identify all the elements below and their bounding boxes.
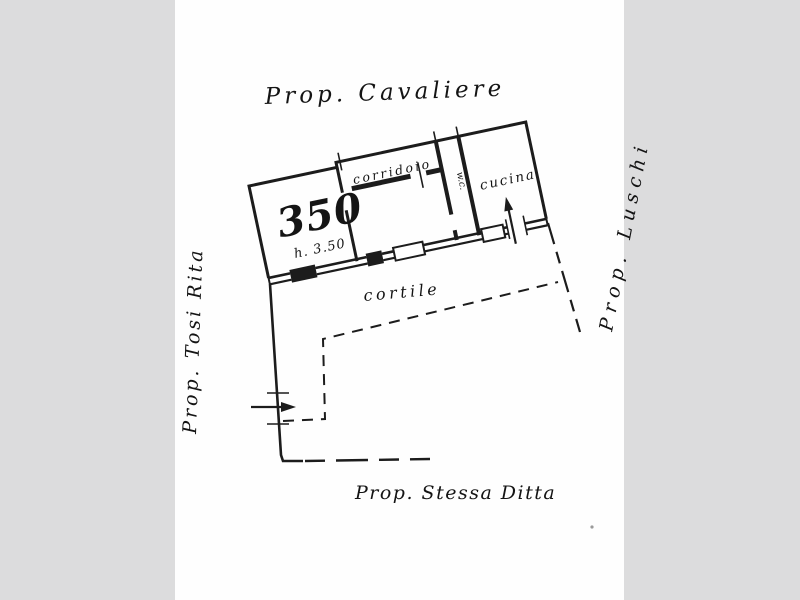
scanned-floorplan-page: Prop. Cavaliere Prop. Tosi Rita Prop. Lu…: [0, 0, 800, 600]
floorplan-drawing: Prop. Cavaliere Prop. Tosi Rita Prop. Lu…: [0, 0, 800, 600]
scan-speck: [590, 525, 593, 528]
south-neighbor-label: Prop. Stessa Ditta: [354, 482, 556, 504]
